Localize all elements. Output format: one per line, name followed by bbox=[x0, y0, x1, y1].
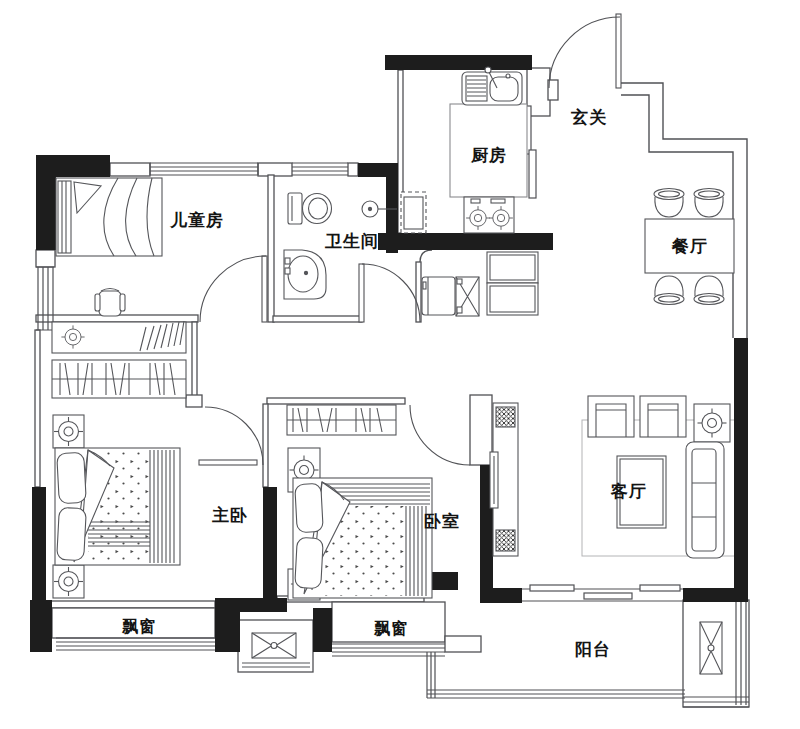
dining-chair bbox=[654, 189, 684, 218]
children-room-furniture bbox=[56, 178, 162, 316]
kitchen-cabinet-dashed bbox=[401, 192, 426, 233]
master-bedroom-door bbox=[199, 407, 263, 465]
room-label-living: 客厅 bbox=[611, 480, 647, 503]
washbasin bbox=[284, 250, 326, 299]
children-room-door bbox=[200, 256, 267, 322]
room-label-kitchen: 厨房 bbox=[471, 144, 507, 167]
double-bed-2 bbox=[293, 478, 432, 598]
dining-chair bbox=[654, 276, 684, 305]
desk bbox=[52, 321, 186, 353]
room-label-entry: 玄关 bbox=[571, 106, 607, 129]
kitchen-sink bbox=[462, 67, 522, 105]
room-label-bedroom: 卧室 bbox=[424, 510, 460, 533]
room-label-dining: 餐厅 bbox=[672, 235, 708, 258]
hallway-appliances bbox=[422, 252, 538, 316]
side-table-lamp bbox=[694, 404, 730, 442]
window-bay-right bbox=[332, 644, 445, 656]
dining-chair bbox=[694, 189, 724, 218]
living-room-furniture bbox=[588, 396, 730, 558]
room-label-bay-window-left: 飘窗 bbox=[122, 617, 156, 638]
window-children-top bbox=[150, 163, 258, 175]
kitchen-fixtures bbox=[401, 67, 527, 233]
ac-unit-balcony bbox=[700, 622, 722, 674]
room-label-master: 主卧 bbox=[212, 504, 248, 527]
armchair bbox=[588, 396, 634, 437]
double-bed-master bbox=[55, 448, 180, 565]
toilet bbox=[288, 193, 332, 224]
bookshelf-2 bbox=[287, 405, 396, 435]
tv-cabinet bbox=[490, 403, 518, 556]
balcony-sliding-door bbox=[522, 585, 683, 601]
room-label-bay-window-right: 飘窗 bbox=[374, 619, 408, 640]
bathroom-door bbox=[359, 264, 420, 322]
bedroom-door bbox=[410, 405, 470, 465]
room-label-children: 儿童房 bbox=[170, 209, 224, 232]
floor-plan: 儿童房 卫生间 厨房 玄关 餐厅 主卧 卧室 客厅 飘窗 飘窗 阳台 bbox=[0, 0, 800, 729]
dining-chair bbox=[694, 276, 724, 305]
sofa bbox=[686, 442, 724, 558]
desk-chair bbox=[95, 289, 125, 317]
single-bed bbox=[56, 178, 162, 256]
armchair bbox=[640, 396, 686, 437]
wall-corner-curve bbox=[420, 250, 432, 262]
room-label-bathroom: 卫生间 bbox=[325, 230, 379, 253]
entry-door bbox=[549, 14, 621, 88]
room-label-balcony: 阳台 bbox=[575, 638, 611, 661]
master-bedroom-furniture bbox=[52, 321, 186, 598]
hall-cabinet bbox=[487, 252, 538, 315]
window-bay-left bbox=[56, 638, 215, 650]
bookshelf bbox=[52, 360, 186, 398]
refrigerator bbox=[422, 277, 455, 315]
stove bbox=[464, 197, 514, 233]
window-bathroom-top bbox=[292, 163, 348, 175]
washing-machine bbox=[456, 277, 479, 316]
